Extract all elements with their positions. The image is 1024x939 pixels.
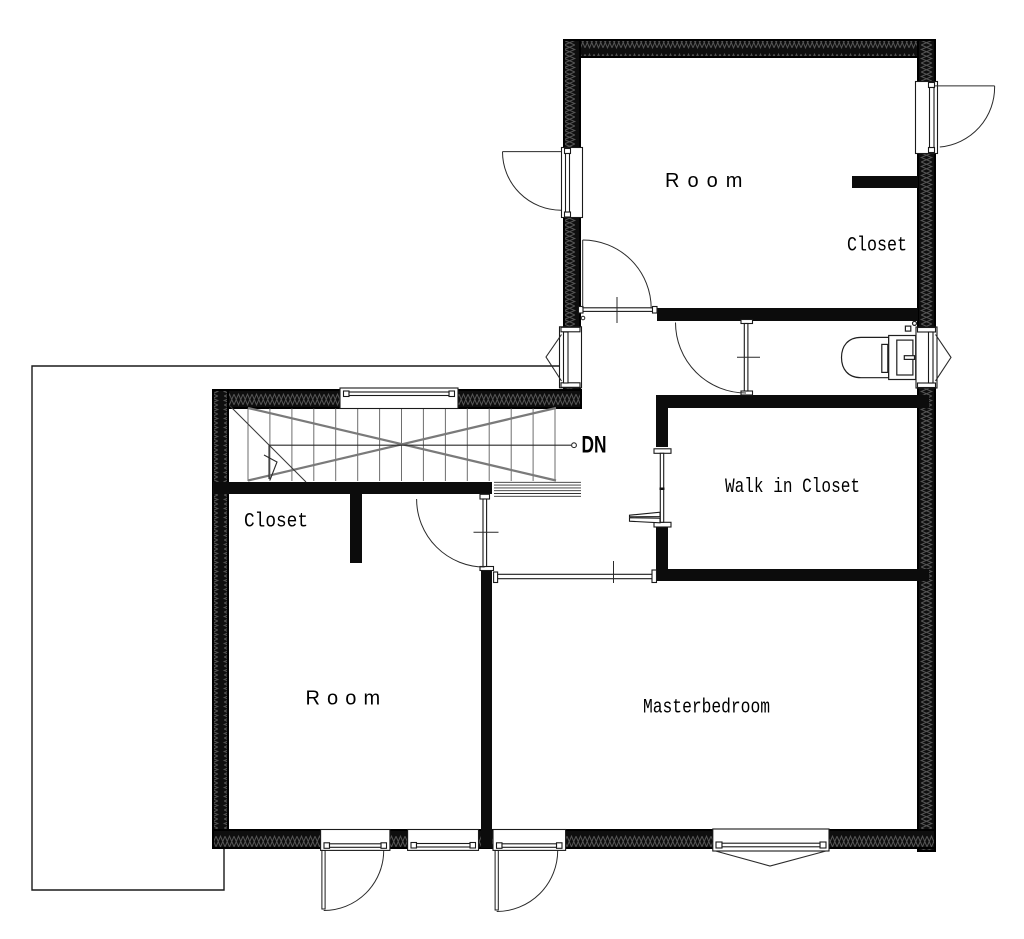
svg-text:Closet: Closet — [244, 511, 308, 534]
svg-text:Room: Room — [665, 170, 750, 192]
svg-text:Room: Room — [306, 688, 388, 710]
svg-text:DN: DN — [582, 432, 607, 459]
svg-text:Masterbedroom: Masterbedroom — [643, 697, 770, 720]
svg-text:Closet: Closet — [847, 235, 907, 258]
svg-text:Walk in Closet: Walk in Closet — [725, 476, 860, 499]
